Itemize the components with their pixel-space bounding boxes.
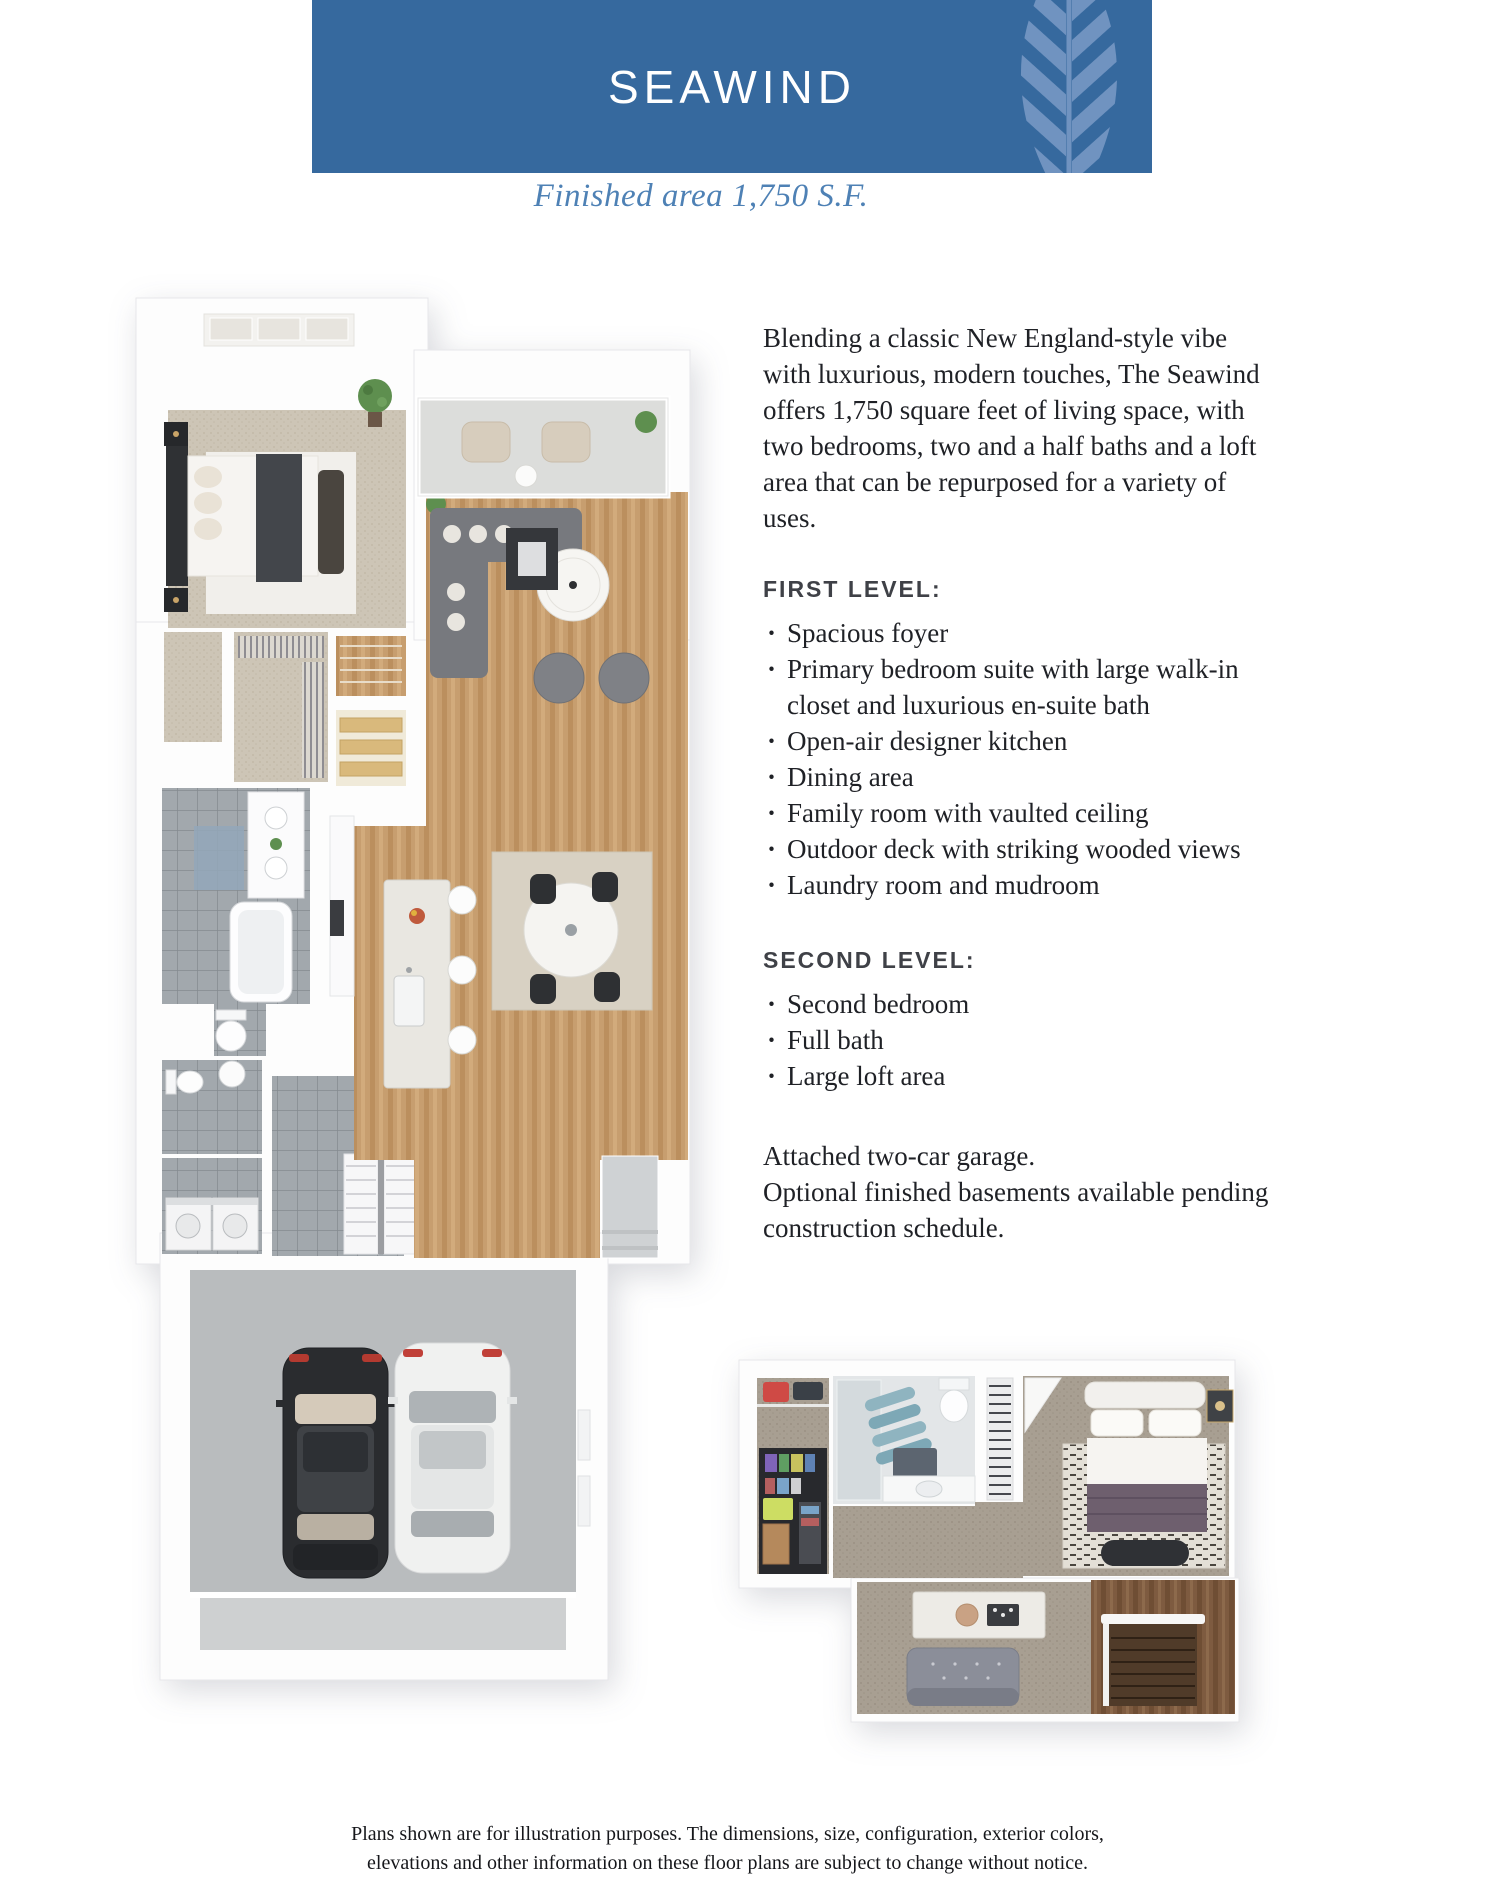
window [578,1410,590,1460]
landing [833,1502,1023,1578]
bath-rug [194,826,244,890]
dining-chair [594,972,620,1002]
bar-stool [448,1026,476,1054]
second-level-floor-plan [733,1352,1245,1732]
storage-closet [757,1378,829,1574]
bed-headboard [166,446,188,586]
disclaimer: Plans shown are for illustration purpose… [0,1820,1455,1878]
second-bedroom [1023,1376,1233,1576]
feature-item: Full bath [763,1022,1275,1058]
garage-note: Attached two-car garage. [763,1138,1275,1174]
bed [1087,1438,1207,1484]
disclaimer-line-2: elevations and other information on thes… [0,1849,1455,1878]
feature-item: Outdoor deck with striking wooded views [763,831,1275,867]
bar-stool [448,886,476,914]
dining-chair [592,872,618,902]
toilet [216,1021,246,1051]
driveway-apron [200,1596,566,1650]
basement-stairs [344,1154,418,1254]
bed-blanket [1087,1484,1207,1532]
finished-area-subtitle: Finished area 1,750 S.F. [401,174,1001,218]
window [578,1476,590,1526]
dining-area [492,852,652,1010]
feature-item: Family room with vaulted ceiling [763,795,1275,831]
deck-table [515,465,537,487]
outdoor-deck [418,398,668,496]
deck-chair [542,422,590,462]
toilet [940,1390,968,1422]
first-level-floor-plan [118,270,700,1682]
ottoman [599,653,649,703]
basement-note: Optional finished basements available pe… [763,1174,1275,1246]
feature-item: Primary bedroom suite with large walk-in… [763,651,1275,723]
second-level-heading: SECOND LEVEL: [763,947,1275,974]
deck-chair [462,422,510,462]
foyer [414,1156,658,1258]
laundry-room [162,1158,262,1254]
feature-item: Large loft area [763,1058,1275,1094]
ottoman [534,653,584,703]
half-bath [162,1060,262,1154]
disclaimer-line-1: Plans shown are for illustration purpose… [0,1820,1455,1849]
bedroom-bench [318,470,344,574]
full-bath [833,1376,975,1504]
white-car [388,1343,517,1573]
title-banner: SEAWIND [312,0,1152,173]
first-level-heading: FIRST LEVEL: [763,576,1275,603]
leaf-icon [982,0,1152,173]
bedroom-bench [1101,1540,1189,1566]
feature-item: Dining area [763,759,1275,795]
stair-railing [1101,1614,1205,1624]
first-level-features: Spacious foyer Primary bedroom suite wit… [763,615,1275,903]
round-sink [219,1061,245,1087]
intro-paragraph: Blending a classic New England-style vib… [763,320,1275,536]
feature-item: Second bedroom [763,986,1275,1022]
bed-headboard [1085,1382,1205,1408]
dining-chair [530,974,556,1004]
description-column: Blending a classic New England-style vib… [763,320,1275,1246]
stairwell [1091,1580,1235,1714]
feature-item: Laundry room and mudroom [763,867,1275,903]
second-level-features: Second bedroom Full bath Large loft area [763,986,1275,1094]
plant [635,411,657,433]
brochure-page: SEAWIND Finished area 1,750 S.F. [0,0,1500,1904]
front-porch [602,1156,658,1258]
bath-rug [893,1448,937,1478]
feature-item: Open-air designer kitchen [763,723,1275,759]
bar-stool [448,956,476,984]
feature-item: Spacious foyer [763,615,1275,651]
oven [330,900,344,936]
loft-area [857,1582,1091,1714]
bed-throw-blanket [256,454,302,582]
linen-closet [987,1378,1013,1500]
toilet [177,1071,203,1093]
staircase [336,636,406,786]
plant [358,379,392,413]
dining-chair [530,874,556,904]
loft-island [913,1592,1045,1638]
garage [190,1270,590,1650]
family-room [426,476,688,830]
black-car [276,1348,395,1578]
